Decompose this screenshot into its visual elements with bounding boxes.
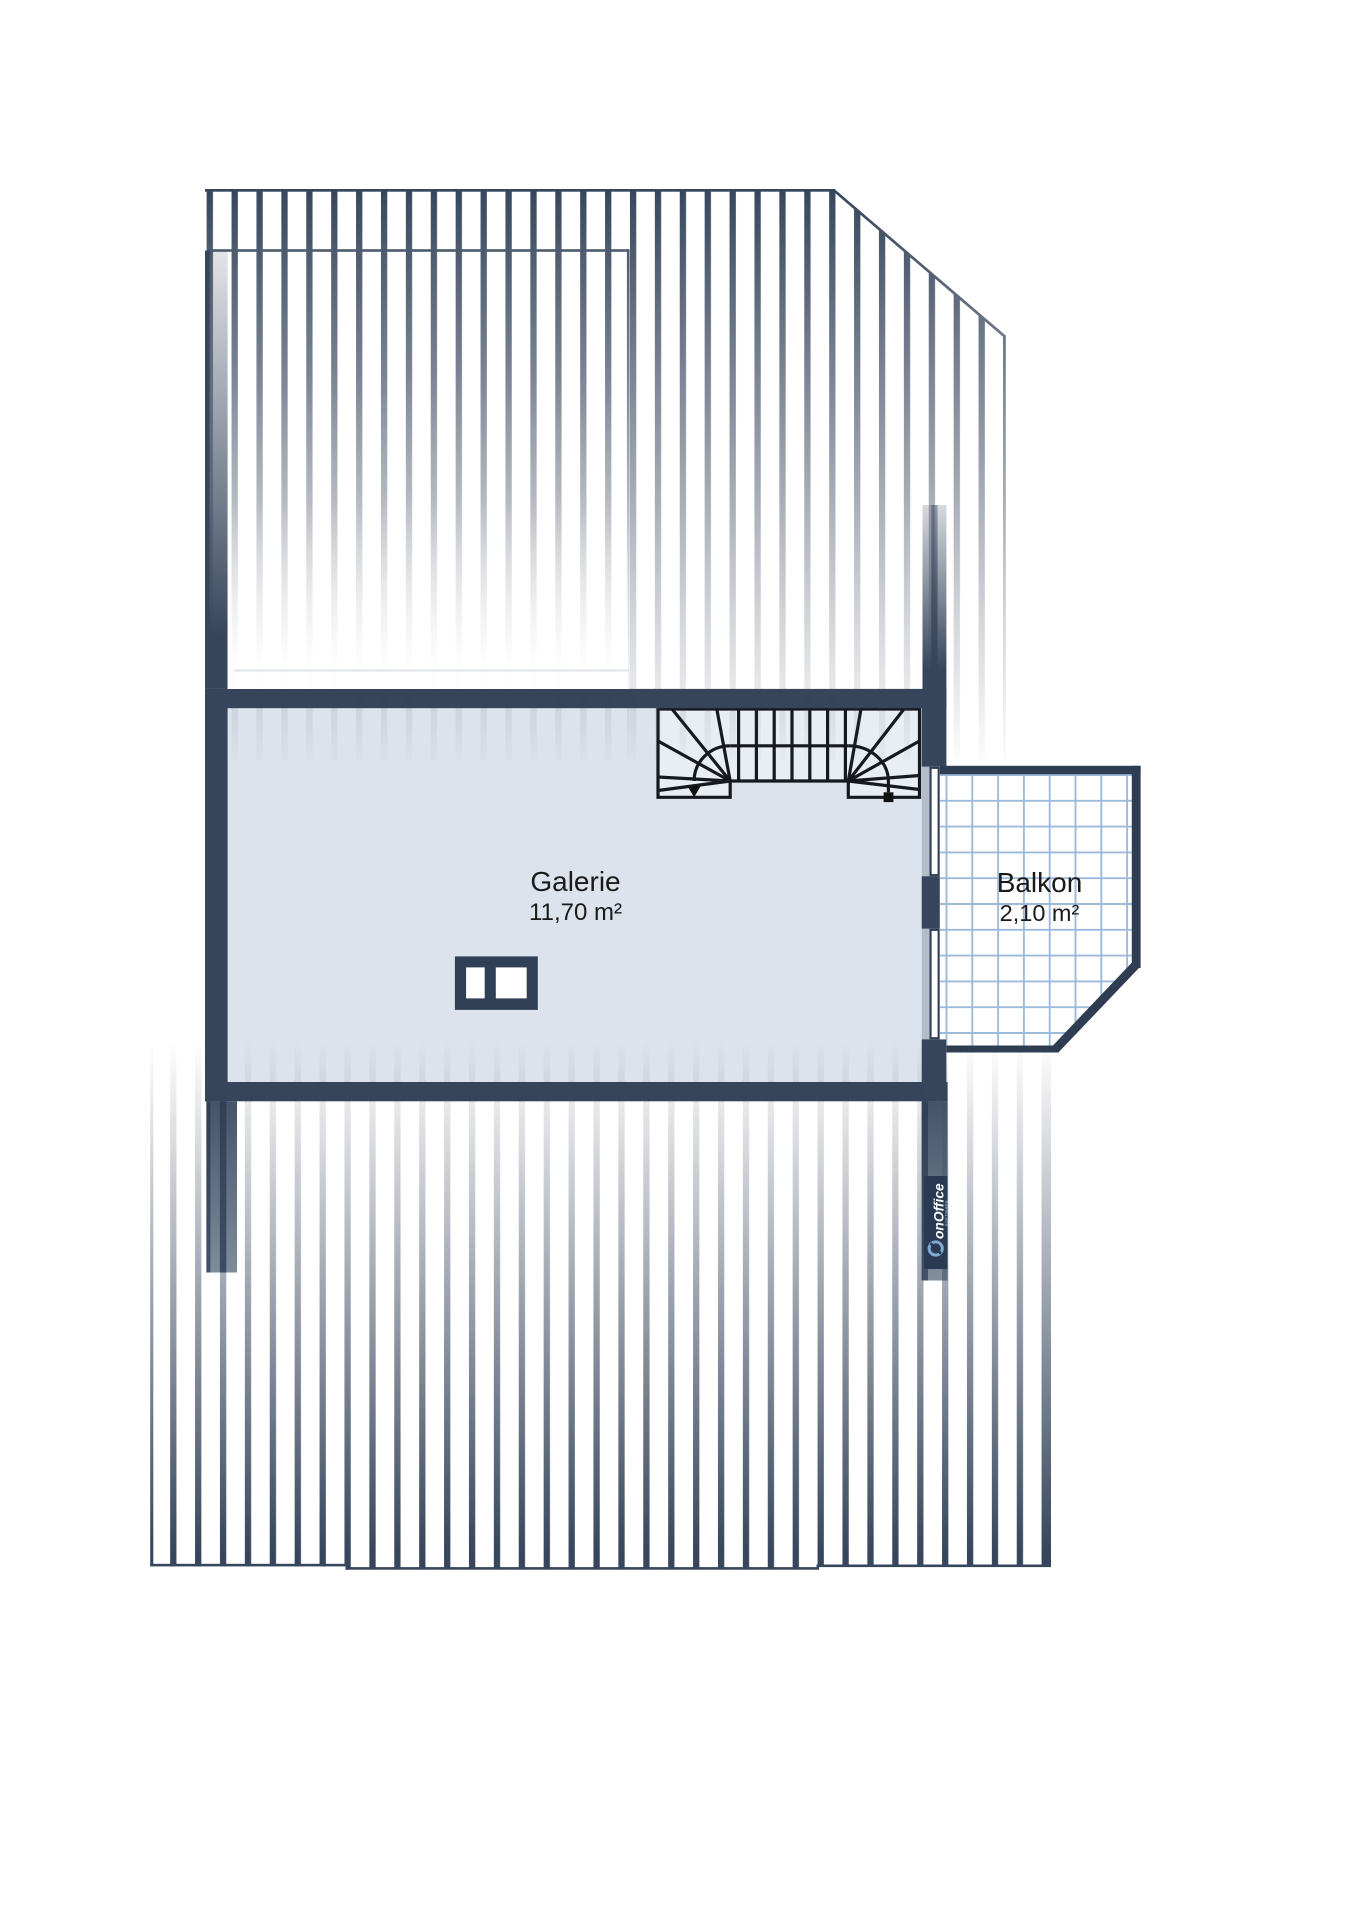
svg-text:SOFTWARE: SOFTWARE <box>943 1200 948 1227</box>
svg-text:Galerie: Galerie <box>530 866 620 897</box>
svg-text:11,70 m²: 11,70 m² <box>529 899 622 926</box>
svg-text:Balkon: Balkon <box>997 867 1083 898</box>
svg-text:2,10 m²: 2,10 m² <box>1000 900 1080 926</box>
